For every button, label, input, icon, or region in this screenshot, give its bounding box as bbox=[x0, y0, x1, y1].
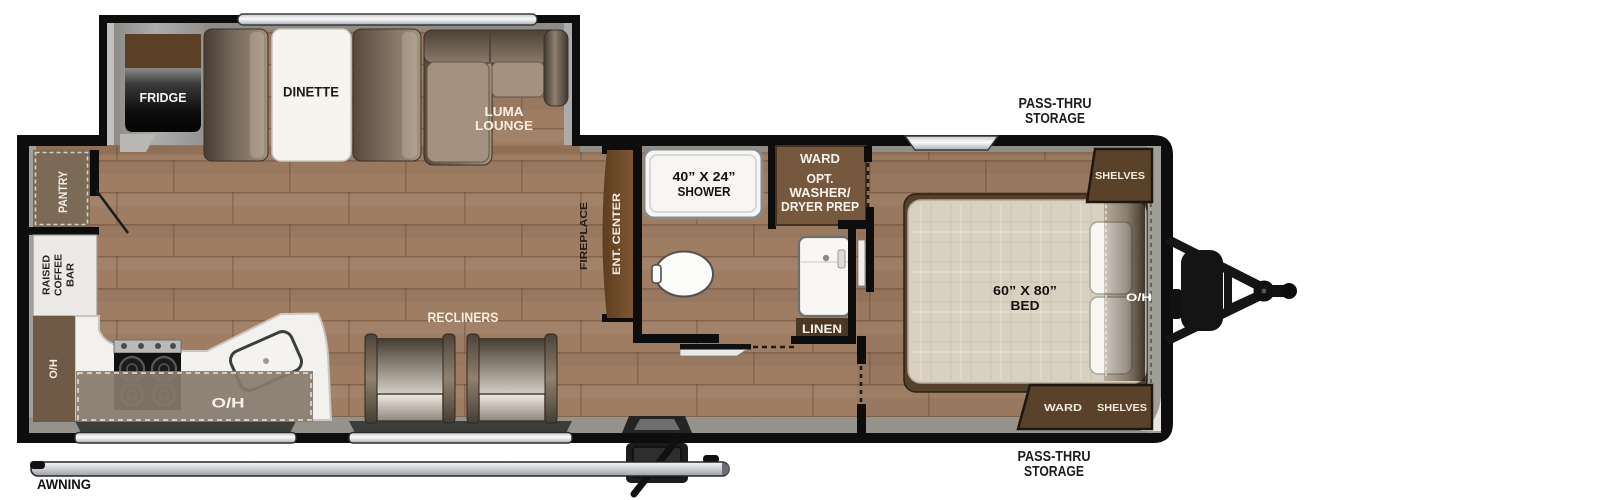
svg-text:O/H: O/H bbox=[212, 395, 245, 411]
svg-text:WASHER/: WASHER/ bbox=[790, 186, 852, 200]
svg-text:O/H: O/H bbox=[48, 359, 60, 379]
svg-text:FIREPLACE: FIREPLACE bbox=[578, 202, 590, 270]
svg-text:BAR: BAR bbox=[66, 262, 77, 287]
svg-text:ENT. CENTER: ENT. CENTER bbox=[611, 193, 623, 275]
svg-text:LINEN: LINEN bbox=[802, 324, 842, 336]
svg-text:DINETTE: DINETTE bbox=[283, 85, 339, 100]
svg-text:BED: BED bbox=[1011, 299, 1040, 313]
svg-text:SHELVES: SHELVES bbox=[1097, 402, 1147, 414]
svg-text:PASS-THRU: PASS-THRU bbox=[1019, 96, 1092, 112]
svg-text:OPT.: OPT. bbox=[807, 172, 834, 186]
svg-text:WARD: WARD bbox=[1044, 402, 1082, 414]
svg-text:PASS-THRU: PASS-THRU bbox=[1018, 449, 1091, 465]
svg-text:RAISED: RAISED bbox=[42, 255, 53, 295]
svg-text:STORAGE: STORAGE bbox=[1025, 111, 1085, 127]
svg-text:DRYER PREP: DRYER PREP bbox=[781, 200, 859, 214]
svg-text:STORAGE: STORAGE bbox=[1024, 464, 1084, 480]
svg-text:LOUNGE: LOUNGE bbox=[475, 118, 533, 133]
svg-text:60” X 80”: 60” X 80” bbox=[993, 284, 1057, 298]
svg-text:SHOWER: SHOWER bbox=[678, 185, 731, 199]
svg-text:SHELVES: SHELVES bbox=[1095, 170, 1145, 182]
svg-text:FRIDGE: FRIDGE bbox=[140, 91, 187, 105]
svg-text:AWNING: AWNING bbox=[37, 477, 91, 492]
svg-text:40” X 24”: 40” X 24” bbox=[673, 170, 736, 184]
svg-text:COFFEE: COFFEE bbox=[54, 254, 65, 296]
svg-text:LUMA: LUMA bbox=[485, 104, 525, 119]
svg-text:WARD: WARD bbox=[800, 152, 840, 166]
svg-text:O/H: O/H bbox=[1126, 292, 1152, 304]
svg-text:PANTRY: PANTRY bbox=[58, 171, 70, 213]
svg-text:RECLINERS: RECLINERS bbox=[428, 310, 499, 325]
